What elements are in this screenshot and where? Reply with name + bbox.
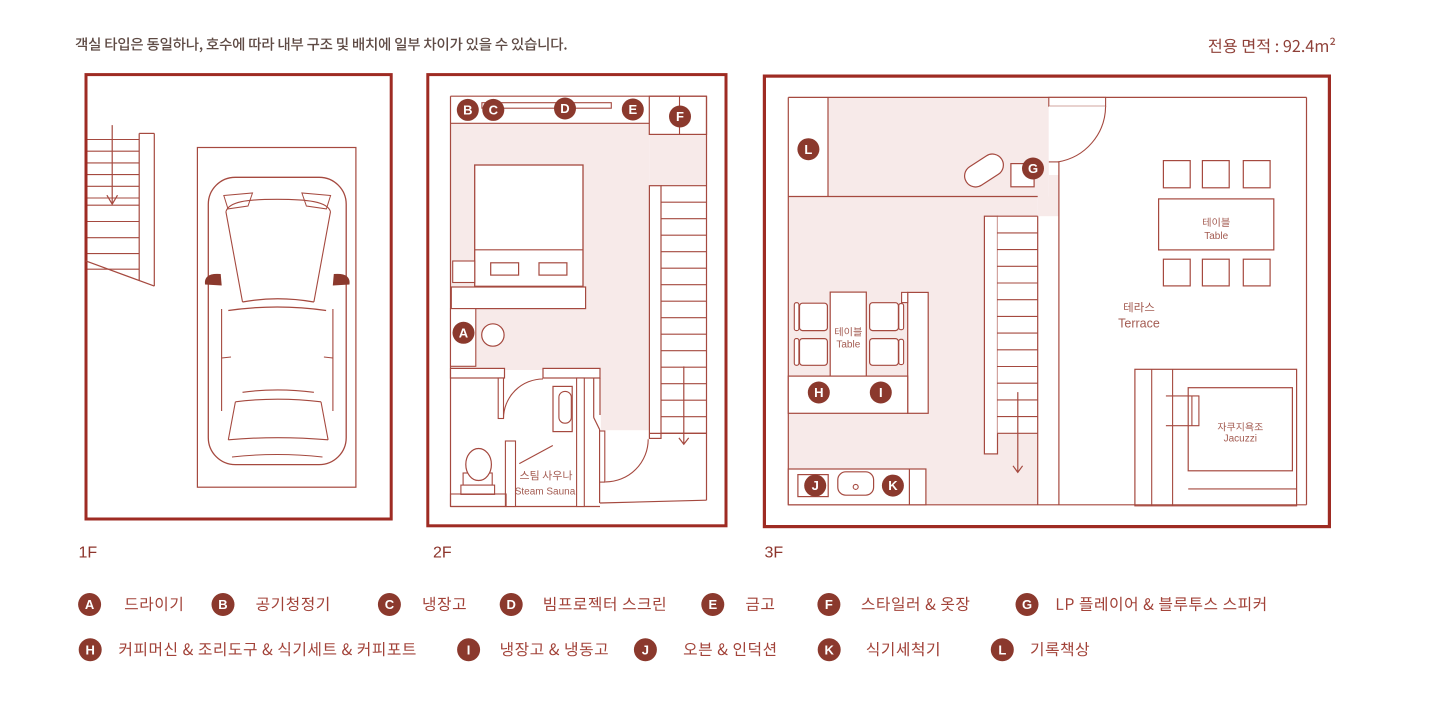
svg-text:K: K	[825, 642, 835, 657]
svg-text:I: I	[879, 385, 883, 400]
svg-text:A: A	[459, 325, 469, 340]
svg-text:Terrace: Terrace	[1118, 317, 1160, 331]
svg-text:F: F	[676, 109, 684, 124]
svg-text:G: G	[1028, 161, 1038, 176]
svg-text:K: K	[888, 478, 898, 493]
svg-text:I: I	[467, 642, 471, 657]
svg-text:Steam Sauna: Steam Sauna	[515, 487, 576, 498]
svg-text:J: J	[642, 642, 649, 657]
svg-text:E: E	[628, 102, 637, 117]
svg-text:E: E	[708, 597, 717, 612]
svg-text:H: H	[814, 385, 823, 400]
svg-text:J: J	[812, 478, 819, 493]
svg-text:G: G	[1022, 597, 1032, 612]
svg-text:L: L	[998, 642, 1006, 657]
svg-text:C: C	[489, 103, 499, 118]
svg-text:3F: 3F	[765, 545, 784, 562]
svg-text:B: B	[463, 103, 472, 118]
svg-text:1F: 1F	[79, 545, 98, 562]
svg-text:H: H	[86, 642, 95, 657]
svg-text:Jacuzzi: Jacuzzi	[1224, 434, 1257, 445]
svg-text:A: A	[85, 597, 95, 612]
svg-text:L: L	[804, 142, 812, 157]
svg-text:D: D	[560, 101, 569, 116]
svg-text:Table: Table	[836, 340, 860, 351]
svg-text:F: F	[825, 597, 833, 612]
svg-text:Table: Table	[1204, 231, 1228, 242]
svg-text:C: C	[385, 597, 395, 612]
svg-text:B: B	[218, 597, 227, 612]
svg-text:D: D	[507, 597, 516, 612]
svg-text:2F: 2F	[433, 545, 452, 562]
